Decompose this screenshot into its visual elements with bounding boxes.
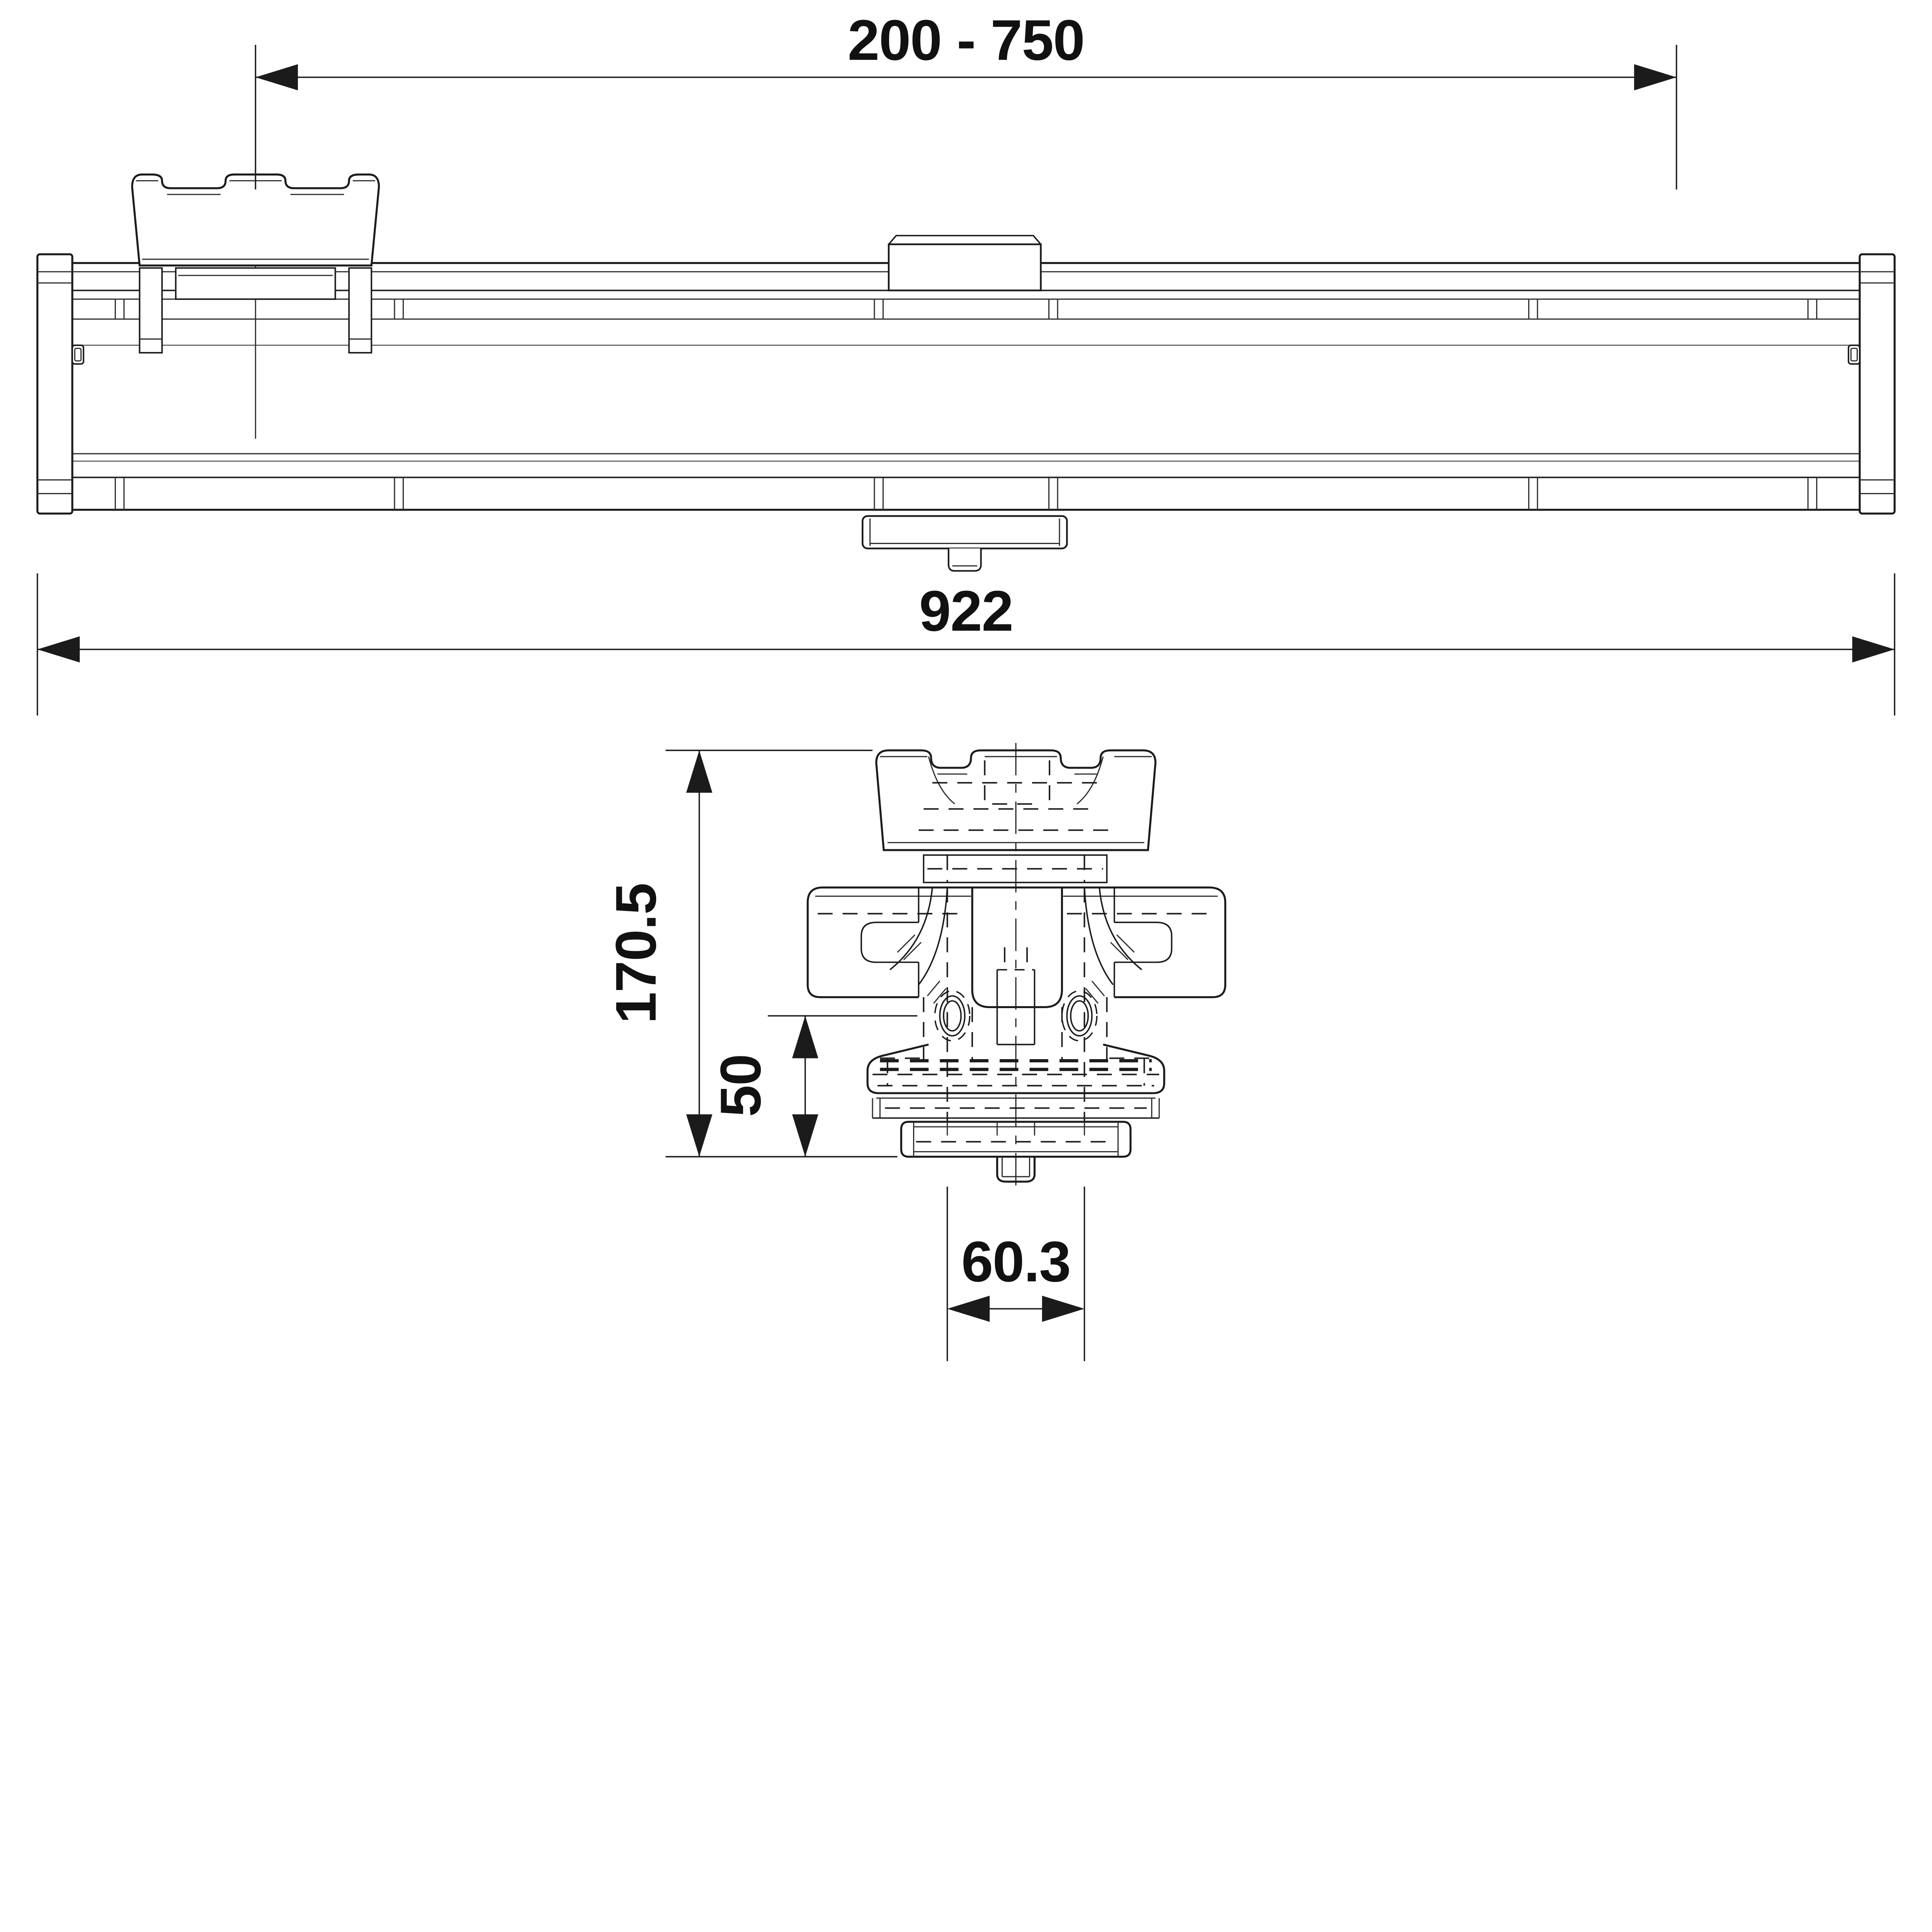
overall-length-label: 922 (919, 579, 1013, 643)
rail-body (72, 263, 1860, 510)
section-rail-profile (808, 888, 1225, 1007)
dimension-tube-width: 60.3 (947, 1187, 1085, 1361)
center-tab (889, 236, 1041, 291)
rail-assembly-drawing: 200 - 750 922 170.5 50 60.3 (0, 0, 1932, 1932)
dimension-bracket-spacing: 200 - 750 (255, 9, 1676, 189)
bolt-hole-right (1062, 991, 1097, 1041)
front-view (37, 175, 1932, 571)
section-view (808, 743, 1225, 1192)
end-cap-right (1849, 254, 1895, 514)
bottom-plate (862, 516, 1067, 571)
dimension-overall-length: 922 (37, 573, 1895, 716)
tube-width-label: 60.3 (961, 1230, 1070, 1294)
base-offset-label: 50 (709, 1054, 773, 1117)
mount-bracket-left (132, 175, 379, 439)
overall-height-label: 170.5 (604, 883, 668, 1024)
bracket-spacing-label: 200 - 750 (848, 9, 1084, 72)
section-base-block (923, 855, 1107, 883)
end-cap-left (37, 254, 83, 514)
bolt-hole-left (935, 991, 969, 1041)
technical-drawing-canvas: 200 - 750 922 170.5 50 60.3 (0, 0, 1932, 1932)
